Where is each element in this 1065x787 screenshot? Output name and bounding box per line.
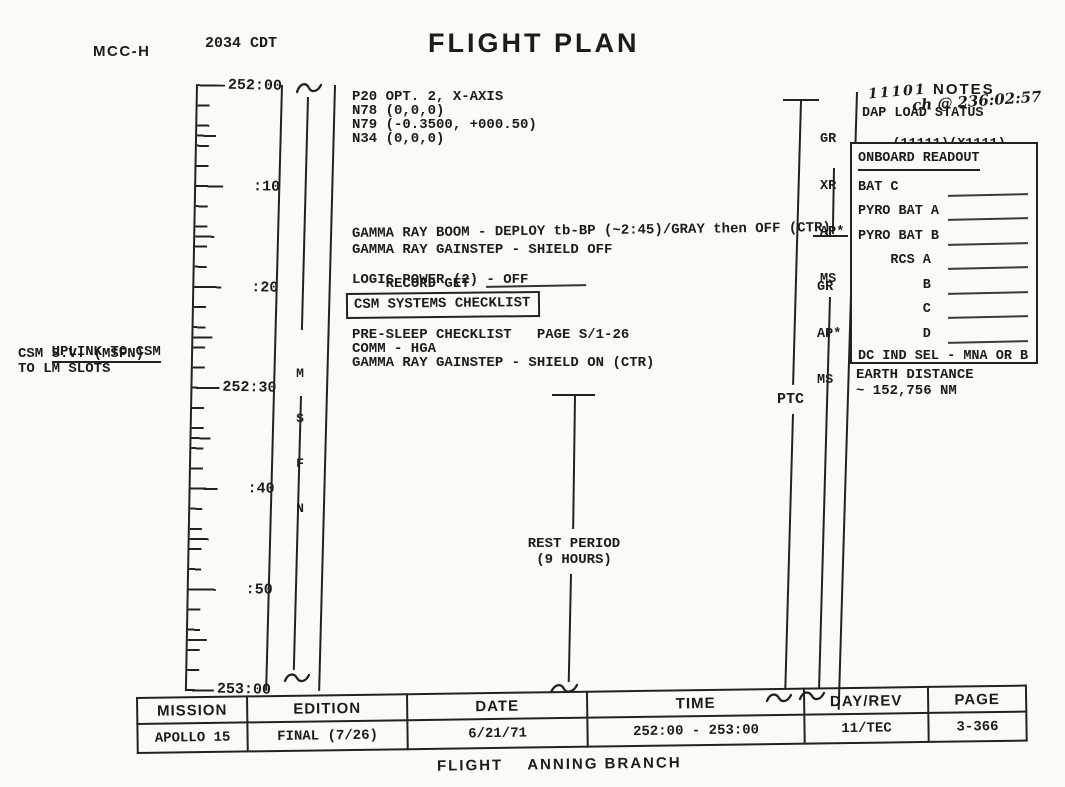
readout-blank-line <box>948 287 1028 295</box>
time-value: 252:00 - 253:00 <box>587 715 804 747</box>
attitude-marker: AP* <box>817 327 849 343</box>
rest-period-label: REST PERIOD <box>513 537 635 552</box>
edition-value: FINAL (7/26) <box>247 720 407 751</box>
ptc-line <box>792 101 802 385</box>
flight-plan-page: MCC-H 2034 CDT FLIGHT PLAN 252:00 :10 :2… <box>0 0 1065 787</box>
time-tick-label: :20 <box>216 280 278 297</box>
onboard-readout-box: ONBOARD READOUT BAT C PYRO BAT A PYRO BA… <box>850 142 1038 364</box>
dap-load-status-label: DAP LOAD STATUS <box>862 106 984 122</box>
dayrev-header: DAY/REV <box>804 687 928 715</box>
page-value: 3-366 <box>928 712 1026 742</box>
break-squiggle-icon <box>282 670 312 686</box>
rest-period-line-lower <box>568 574 572 682</box>
readout-blank-line <box>948 238 1028 246</box>
page-title: FLIGHT PLAN <box>428 28 639 59</box>
readout-row: C <box>858 294 1030 319</box>
time-tick-label: 252:00 <box>220 78 282 95</box>
attitude-change-tick <box>813 235 848 237</box>
uplink-note-line3: TO LM SLOTS <box>18 362 110 377</box>
flight-planning-branch-caption: FLIGHT ANNING BRANCH <box>437 754 682 774</box>
time-header: TIME <box>587 689 804 718</box>
time-tick-label: :50 <box>211 582 273 599</box>
rest-period-line <box>572 396 576 529</box>
attitude-marker: GR <box>820 132 852 148</box>
mission-header: MISSION <box>137 696 247 724</box>
readout-row: PYRO BAT A <box>858 196 1030 221</box>
procedure-line: GAMMA RAY GAINSTEP - SHIELD OFF <box>352 243 612 258</box>
attitude-marker: GR <box>817 280 849 296</box>
earth-distance-note: EARTH DISTANCE <box>856 368 974 383</box>
time-tick-label: 252:30 <box>214 380 276 397</box>
dc-ind-sel-note: DC IND SEL - MNA OR B <box>858 349 1030 365</box>
coverage-line-right <box>318 85 336 691</box>
break-squiggle-icon <box>294 80 324 96</box>
attitude-marker: AP* <box>820 225 852 241</box>
procedure-line: GAMMA RAY BOOM - DEPLOY tb-BP (~2:45)/GR… <box>352 221 831 242</box>
procedure-line: N34 (0,0,0) <box>352 132 444 147</box>
edition-header: EDITION <box>247 694 407 722</box>
msfn-coverage-line <box>301 97 309 330</box>
readout-row: RCS A <box>858 245 1030 270</box>
time-tick-label: :40 <box>212 481 274 498</box>
readout-row: B <box>858 269 1030 294</box>
page-header: PAGE <box>928 686 1026 713</box>
station-label: MCC-H <box>93 43 151 60</box>
readout-row: D <box>858 318 1030 343</box>
readout-blank-line <box>948 189 1028 197</box>
ptc-label: PTC <box>777 392 804 408</box>
ptc-line-lower <box>784 414 794 690</box>
rest-period-duration-label: (9 HOURS) <box>513 553 635 568</box>
attitude-marker: MS <box>817 373 849 389</box>
local-time-label: 2034 CDT <box>205 36 277 52</box>
mission-value: APOLLO 15 <box>137 722 247 753</box>
date-header: DATE <box>407 692 587 721</box>
time-tick-label: :10 <box>218 179 280 196</box>
csm-systems-checklist-box: CSM SYSTEMS CHECKLIST <box>346 291 541 319</box>
date-value: 6/21/71 <box>407 718 587 750</box>
readout-blank-line <box>948 336 1028 344</box>
procedure-line: GAMMA RAY GAINSTEP - SHIELD ON (CTR) <box>352 356 654 371</box>
dayrev-value: 11/TEC <box>804 713 928 744</box>
attitude-marker-group-2: GR AP* MS <box>817 249 849 420</box>
onboard-readout-title: ONBOARD READOUT <box>858 150 980 171</box>
readout-row: BAT C <box>858 171 1030 196</box>
earth-distance-value: ~ 152,756 NM <box>856 384 957 399</box>
attitude-marker: XR <box>820 179 852 195</box>
footer-table: MISSION EDITION DATE TIME DAY/REV PAGE A… <box>136 685 1028 754</box>
uplink-note-line2: CSM S.V. (MSFN) <box>18 347 144 362</box>
readout-row: PYRO BAT B <box>858 220 1030 245</box>
procedure-line: LOGIC POWER (2) - OFF <box>352 273 528 288</box>
